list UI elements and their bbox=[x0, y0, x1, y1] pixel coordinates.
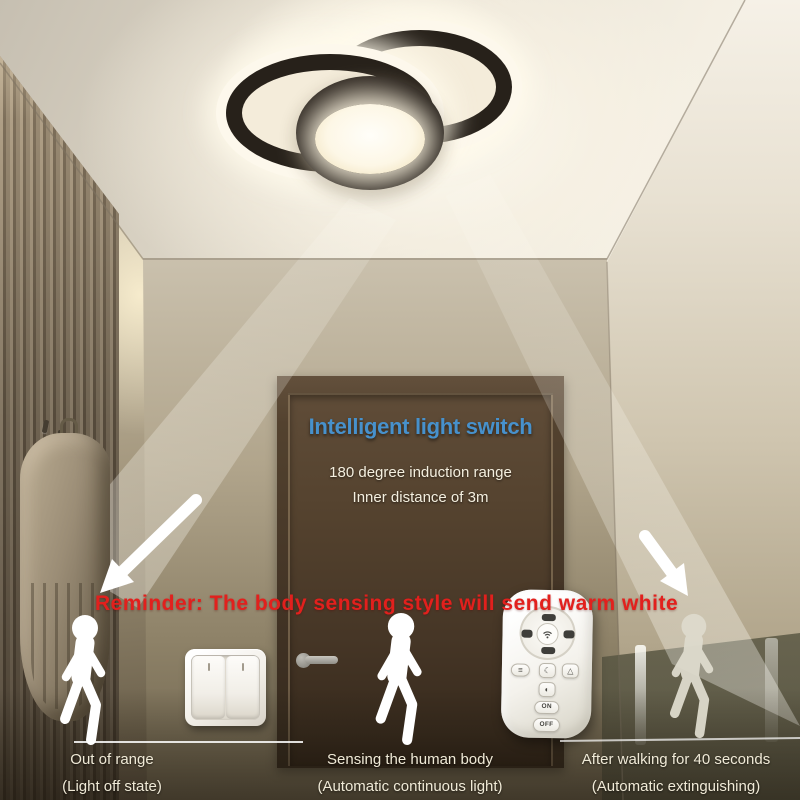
caption-line: Sensing the human body bbox=[290, 746, 530, 773]
remote-off-button: OFF bbox=[533, 718, 560, 732]
door-handle-lever bbox=[305, 656, 338, 664]
caption-line: (Automatic continuous light) bbox=[290, 773, 530, 800]
door-text-block: Intelligent light switch 180 degree indu… bbox=[277, 414, 564, 510]
remote-on-button: ON bbox=[534, 701, 559, 714]
walking-person-icon-right bbox=[655, 612, 727, 740]
induction-range-text: 180 degree induction range bbox=[277, 460, 564, 485]
remote-right-button bbox=[563, 630, 574, 638]
remote-menu-button: ≡ bbox=[511, 663, 530, 676]
caption-line: (Automatic extinguishing) bbox=[555, 773, 797, 800]
caption-out-of-range: Out of range (Light off state) bbox=[27, 746, 197, 800]
lamp-center-drum bbox=[296, 76, 444, 190]
wall-light-switch bbox=[185, 649, 266, 726]
remote-down-button bbox=[541, 647, 555, 654]
walking-person-icon-middle bbox=[360, 611, 436, 747]
caption-line: Out of range bbox=[27, 746, 197, 773]
ceiling-lamp bbox=[210, 0, 540, 200]
caption-sensing-body: Sensing the human body (Automatic contin… bbox=[290, 746, 530, 800]
lamp-light-disc bbox=[315, 104, 425, 174]
door-handle bbox=[296, 653, 338, 668]
triangle-icon: △ bbox=[567, 667, 573, 675]
switch-rocker-left bbox=[192, 656, 225, 719]
wifi-icon bbox=[541, 629, 553, 639]
remote-off-label: OFF bbox=[539, 722, 553, 729]
remote-left-button bbox=[521, 630, 532, 638]
caption-line: After walking for 40 seconds bbox=[555, 746, 797, 773]
caption-line: (Light off state) bbox=[27, 773, 197, 800]
page-title: Intelligent light switch bbox=[277, 414, 564, 440]
walking-person-icon-left bbox=[45, 613, 119, 747]
remote-brightness-button: ◐ bbox=[538, 682, 555, 697]
menu-icon: ≡ bbox=[518, 666, 523, 674]
remote-scene-button: △ bbox=[562, 663, 579, 678]
brightness-icon: ◐ bbox=[545, 685, 550, 693]
switch-rocker-right bbox=[226, 656, 259, 719]
product-image-hallway: ≡ ☾ △ ◐ ON OFF Intellig bbox=[0, 0, 800, 800]
caption-after-walking: After walking for 40 seconds (Automatic … bbox=[555, 746, 797, 800]
reminder-text: Reminder: The body sensing style will se… bbox=[95, 592, 755, 616]
remote-night-mode-button: ☾ bbox=[539, 663, 556, 678]
remote-on-label: ON bbox=[541, 704, 551, 711]
inner-distance-text: Inner distance of 3m bbox=[277, 485, 564, 510]
moon-icon: ☾ bbox=[544, 666, 551, 674]
